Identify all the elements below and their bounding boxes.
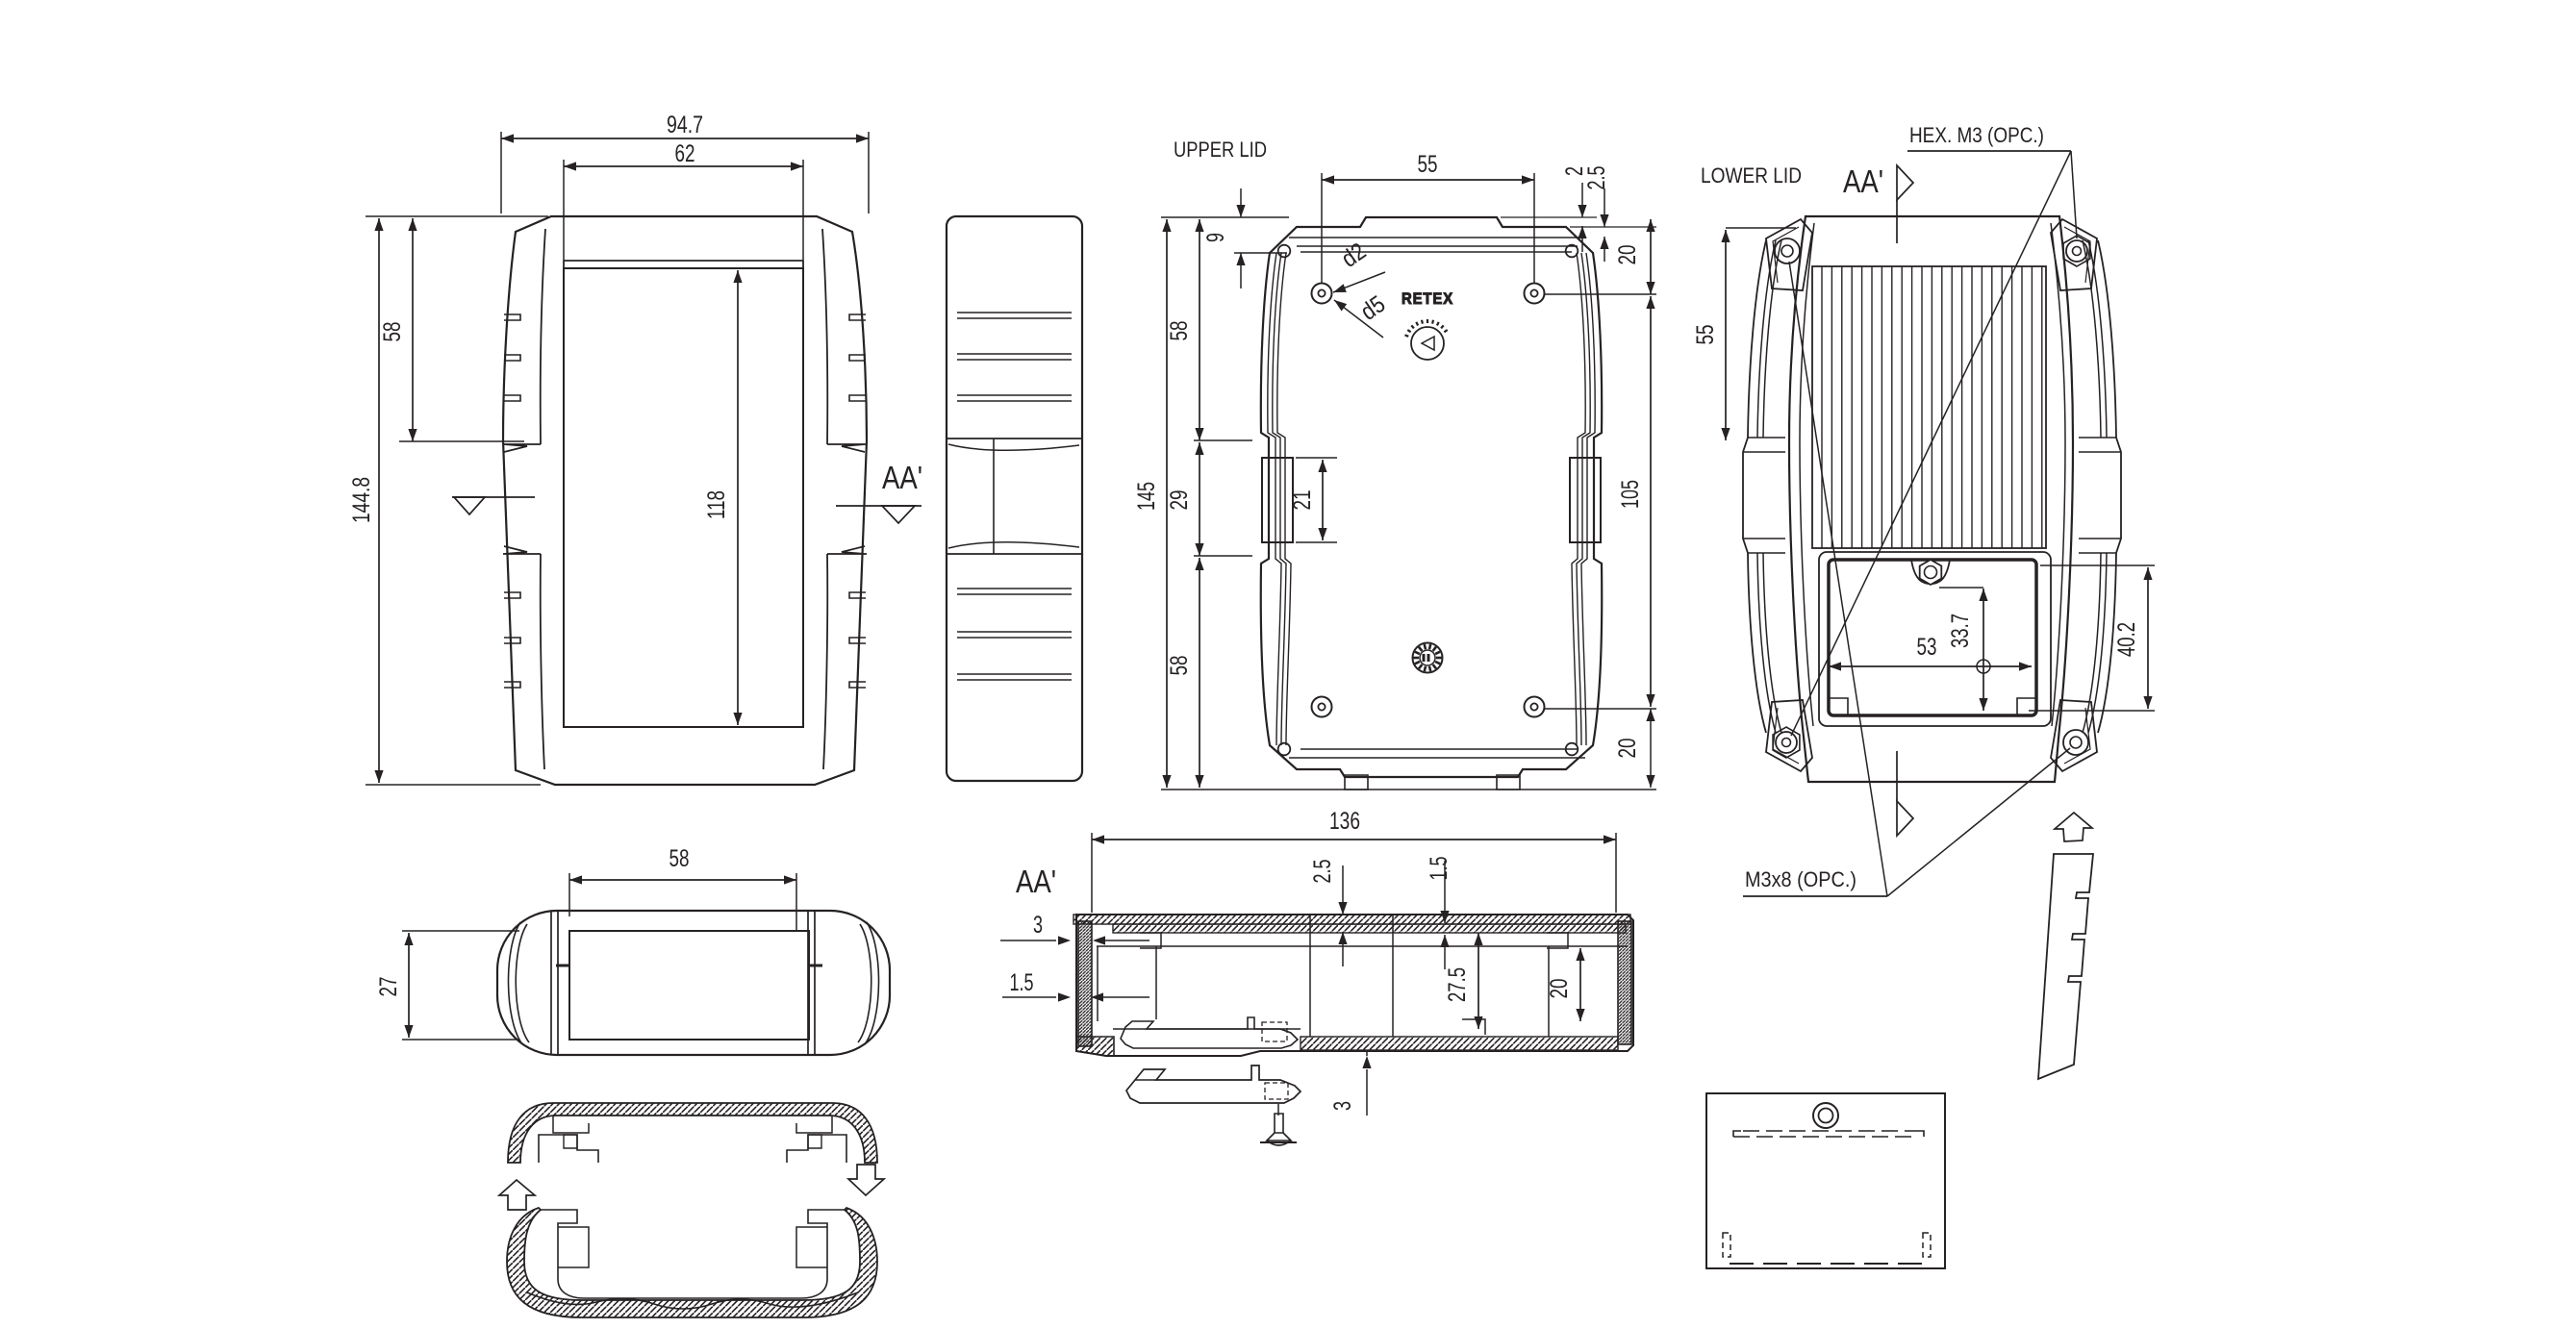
svg-text:144.8: 144.8 xyxy=(348,477,375,523)
svg-text:1.5: 1.5 xyxy=(1010,969,1034,996)
svg-text:AA': AA' xyxy=(1843,163,1883,199)
svg-text:145: 145 xyxy=(1133,482,1160,511)
svg-text:1.5: 1.5 xyxy=(1426,857,1452,881)
svg-text:3: 3 xyxy=(1033,912,1043,939)
svg-text:RETEX: RETEX xyxy=(1402,289,1453,308)
svg-text:55: 55 xyxy=(1418,151,1438,178)
svg-text:27.5: 27.5 xyxy=(1444,967,1471,1002)
svg-text:105: 105 xyxy=(1617,480,1644,509)
svg-text:20: 20 xyxy=(1614,245,1641,265)
svg-text:58: 58 xyxy=(1166,321,1193,341)
svg-text:33.7: 33.7 xyxy=(1947,614,1974,648)
svg-text:58: 58 xyxy=(1166,656,1193,676)
svg-text:20: 20 xyxy=(1546,979,1573,999)
svg-text:2.5: 2.5 xyxy=(1583,166,1610,190)
svg-text:136: 136 xyxy=(1329,808,1360,835)
svg-text:LOWER LID: LOWER LID xyxy=(1701,163,1802,188)
svg-text:94.7: 94.7 xyxy=(667,112,703,138)
svg-text:AA': AA' xyxy=(1016,864,1056,899)
svg-text:2.5: 2.5 xyxy=(1309,860,1336,884)
svg-text:40.2: 40.2 xyxy=(2113,622,2140,657)
svg-text:HEX. M3 (OPC.): HEX. M3 (OPC.) xyxy=(1909,123,2044,147)
svg-text:20: 20 xyxy=(1614,739,1641,759)
svg-text:27: 27 xyxy=(375,977,402,997)
svg-text:118: 118 xyxy=(703,490,730,519)
svg-text:29: 29 xyxy=(1166,490,1193,511)
svg-text:UPPER LID: UPPER LID xyxy=(1174,138,1267,162)
svg-text:3: 3 xyxy=(1329,1101,1356,1111)
svg-text:M3x8 (OPC.): M3x8 (OPC.) xyxy=(1745,867,1856,891)
svg-text:58: 58 xyxy=(669,845,690,872)
svg-text:AA': AA' xyxy=(882,460,922,495)
svg-text:9: 9 xyxy=(1202,233,1229,242)
svg-text:62: 62 xyxy=(675,140,695,167)
svg-text:53: 53 xyxy=(1917,634,1937,661)
svg-text:21: 21 xyxy=(1289,490,1316,511)
svg-text:55: 55 xyxy=(1692,325,1719,345)
svg-text:58: 58 xyxy=(379,322,406,342)
